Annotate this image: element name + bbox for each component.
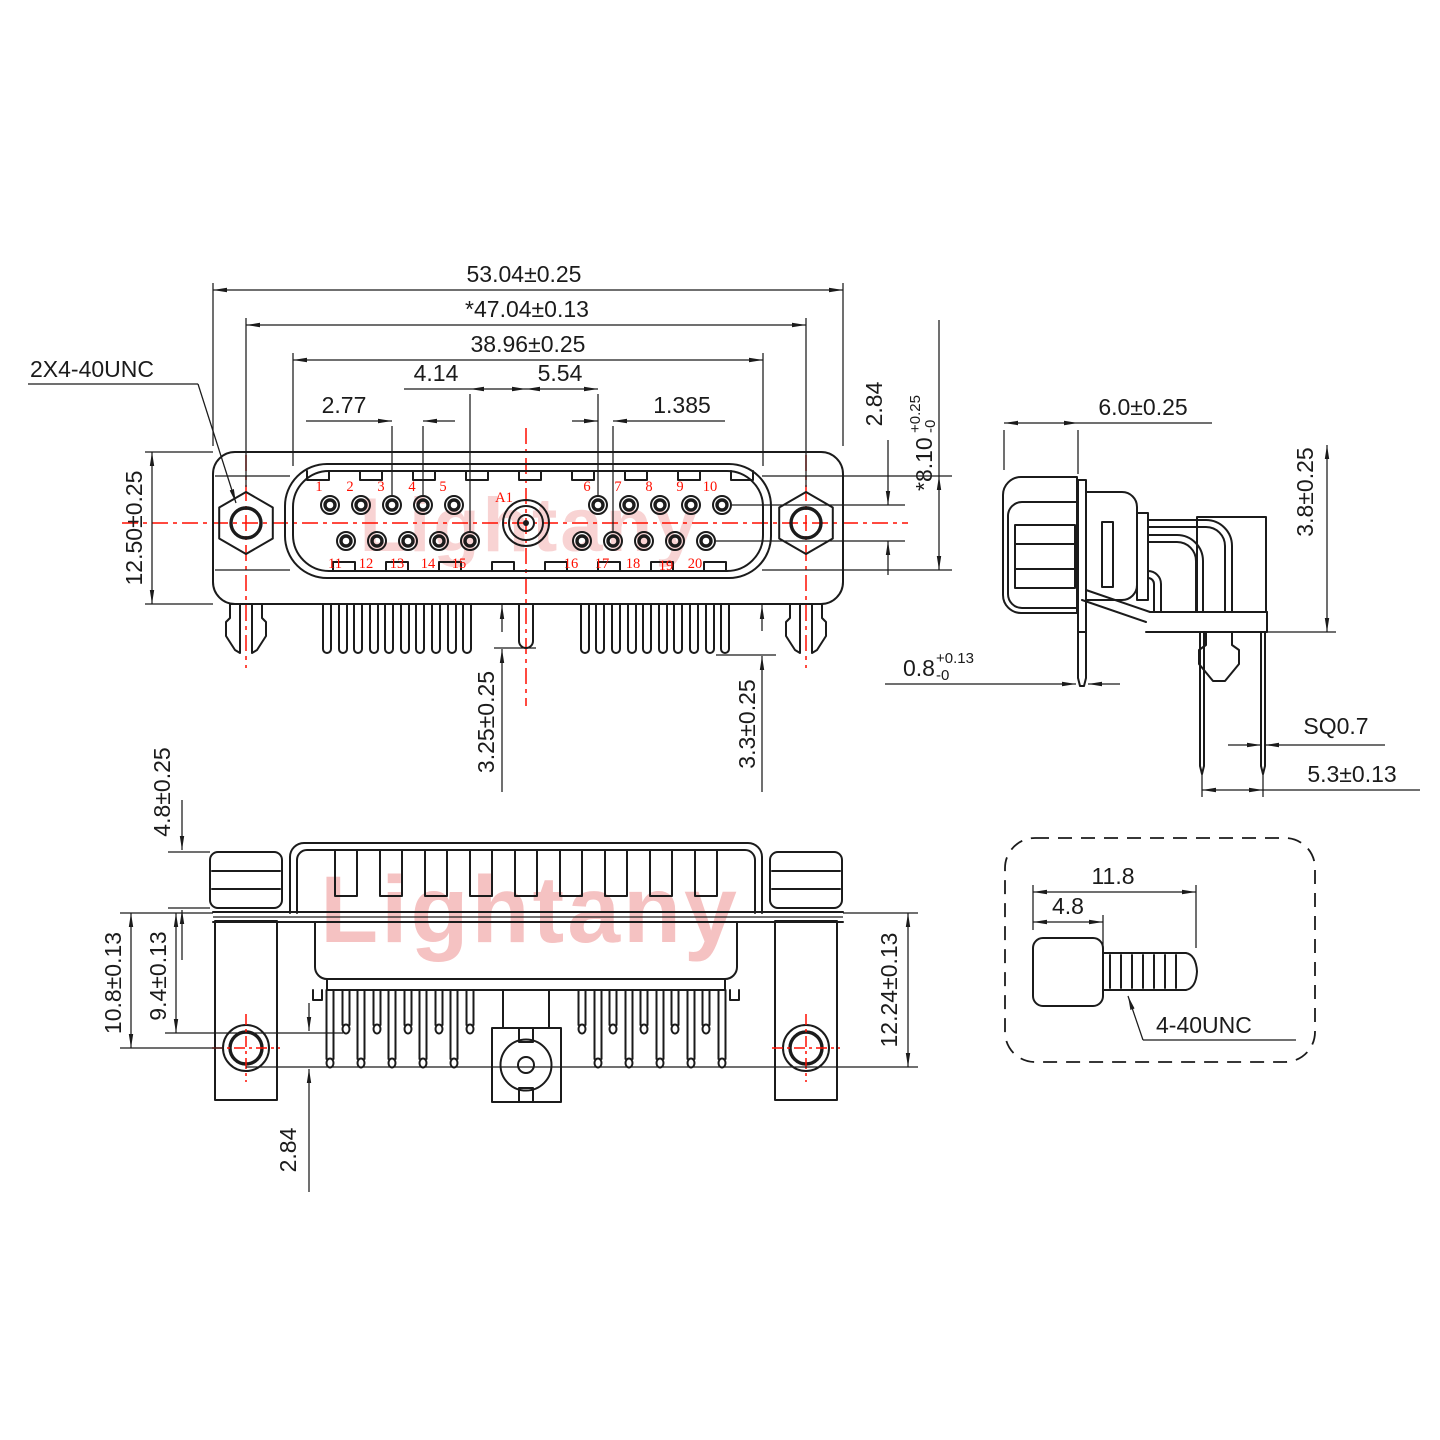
- pin-label-1: 1: [315, 479, 322, 495]
- coax-label-a1: A1: [495, 490, 513, 506]
- dim-lock-depth: 10.8±0.13: [100, 913, 131, 1048]
- pin-label-5: 5: [439, 479, 446, 495]
- pin-label-18: 18: [626, 556, 641, 572]
- watermark-bottom: Lightany: [320, 857, 740, 963]
- screw-thread-callout: 4-40UNC: [1128, 996, 1296, 1040]
- pin-label-2: 2: [346, 479, 353, 495]
- dim-pin-tail: 3.3±0.25: [716, 605, 776, 792]
- screw-shaft: [1103, 953, 1197, 990]
- side-pin-right: [1261, 632, 1265, 774]
- svg-text:*8.10: *8.10: [911, 437, 937, 491]
- svg-text:53.04±0.25: 53.04±0.25: [467, 261, 582, 287]
- side-view: 6.0±0.25 3.8±0.25 0.8 +0.13 -0 SQ0.7 5.3…: [885, 394, 1420, 797]
- pin-20: [697, 532, 715, 550]
- side-bent-pins: [1148, 520, 1232, 612]
- side-jackscrew-hex: [1015, 525, 1075, 588]
- side-body: [1003, 477, 1266, 686]
- pin-10: [713, 496, 731, 514]
- pin-label-12: 12: [359, 556, 374, 572]
- side-boardlock: [1199, 632, 1265, 774]
- svg-text:9.4±0.13: 9.4±0.13: [145, 931, 171, 1020]
- dim-standoff: 3.8±0.25: [1267, 445, 1336, 632]
- svg-text:3.3±0.25: 3.3±0.25: [734, 679, 760, 768]
- watermark-front: Lightany: [360, 483, 701, 568]
- dim-pocket-height: *8.10 +0.25 -0: [907, 320, 939, 570]
- connector-drawing: Lightany: [0, 0, 1440, 1440]
- screw-detail: 11.8 4.8 4-40UNC: [1005, 838, 1315, 1062]
- svg-text:-0: -0: [936, 667, 949, 684]
- side-contact-strip: [1137, 513, 1148, 600]
- dim-nut-height: 4.8±0.25: [149, 747, 210, 960]
- svg-text:*47.04±0.13: *47.04±0.13: [465, 296, 589, 322]
- svg-text:6.0±0.25: 6.0±0.25: [1098, 394, 1187, 420]
- side-bracket: [1082, 590, 1267, 632]
- pin-label-9: 9: [676, 479, 683, 495]
- side-flange-plate: [1078, 480, 1086, 632]
- svg-text:2.84: 2.84: [861, 381, 887, 426]
- svg-text:12.24±0.13: 12.24±0.13: [876, 933, 902, 1048]
- svg-text:3.25±0.25: 3.25±0.25: [473, 671, 499, 773]
- pin-label-13: 13: [390, 556, 405, 572]
- pin-label-6: 6: [583, 479, 590, 495]
- svg-text:2X4-40UNC: 2X4-40UNC: [30, 356, 154, 382]
- dim-board-span: 12.24±0.13: [876, 913, 908, 1067]
- pin-label-20: 20: [688, 556, 703, 572]
- bottom-jackscrew-left: [210, 852, 282, 908]
- svg-text:0.8: 0.8: [903, 655, 935, 681]
- pin-label-14: 14: [421, 556, 436, 572]
- svg-text:+0.13: +0.13: [936, 650, 974, 667]
- svg-text:4.8: 4.8: [1052, 893, 1084, 919]
- side-pin-left: [1200, 632, 1204, 774]
- dim-pin-square: SQ0.7: [1228, 713, 1385, 745]
- svg-text:3.8±0.25: 3.8±0.25: [1292, 447, 1318, 536]
- pin-label-17: 17: [595, 556, 610, 572]
- pin-label-3: 3: [377, 479, 384, 495]
- screw-body: [1033, 938, 1197, 1006]
- svg-text:11.8: 11.8: [1091, 863, 1134, 889]
- dim-insert-depth: 6.0±0.25: [1004, 394, 1212, 474]
- dim-coax-to-pin-right: 5.54: [526, 360, 598, 496]
- svg-text:SQ0.7: SQ0.7: [1303, 713, 1368, 739]
- bottom-coax-tail: [492, 990, 561, 1102]
- dim-flange-height: 12.50±0.25: [121, 452, 213, 604]
- front-view: Lightany: [28, 261, 952, 792]
- side-flange-tab: [1078, 632, 1086, 686]
- pin-label-11: 11: [328, 556, 342, 572]
- pin-label-15: 15: [452, 556, 467, 572]
- svg-text:1.385: 1.385: [653, 392, 711, 418]
- pin-label-16: 16: [564, 556, 579, 572]
- svg-text:-0: -0: [922, 420, 939, 433]
- svg-text:5.3±0.13: 5.3±0.13: [1307, 761, 1396, 787]
- dim-pin-depth: 9.4±0.13: [145, 913, 176, 1033]
- pin-1: [321, 496, 339, 514]
- svg-text:4.14: 4.14: [414, 360, 459, 386]
- svg-text:12.50±0.25: 12.50±0.25: [121, 471, 147, 586]
- svg-text:4-40UNC: 4-40UNC: [1156, 1012, 1252, 1038]
- pin-label-7: 7: [614, 479, 621, 495]
- svg-text:10.8±0.13: 10.8±0.13: [100, 932, 126, 1034]
- svg-text:2.77: 2.77: [322, 392, 367, 418]
- pin-label-4: 4: [408, 479, 416, 495]
- dim-row-gap-front: 2.84: [861, 381, 888, 575]
- pin-label-10: 10: [703, 479, 718, 495]
- bottom-view: Lightany: [100, 747, 918, 1192]
- dim-row-stagger: 2.84: [275, 1003, 309, 1192]
- side-housing: [1086, 492, 1137, 600]
- pin-label-8: 8: [645, 479, 652, 495]
- svg-text:2.84: 2.84: [275, 1127, 301, 1172]
- screw-head: [1033, 938, 1103, 1006]
- coax-contact-a1: [503, 500, 549, 546]
- dim-pin-row-span: 5.3±0.13: [1202, 761, 1420, 797]
- svg-text:38.96±0.25: 38.96±0.25: [471, 331, 586, 357]
- pin-label-19: 19: [659, 558, 674, 574]
- bottom-jackscrew-right: [770, 852, 842, 908]
- svg-text:5.54: 5.54: [538, 360, 583, 386]
- svg-text:4.8±0.25: 4.8±0.25: [149, 747, 175, 836]
- pin-11: [337, 532, 355, 550]
